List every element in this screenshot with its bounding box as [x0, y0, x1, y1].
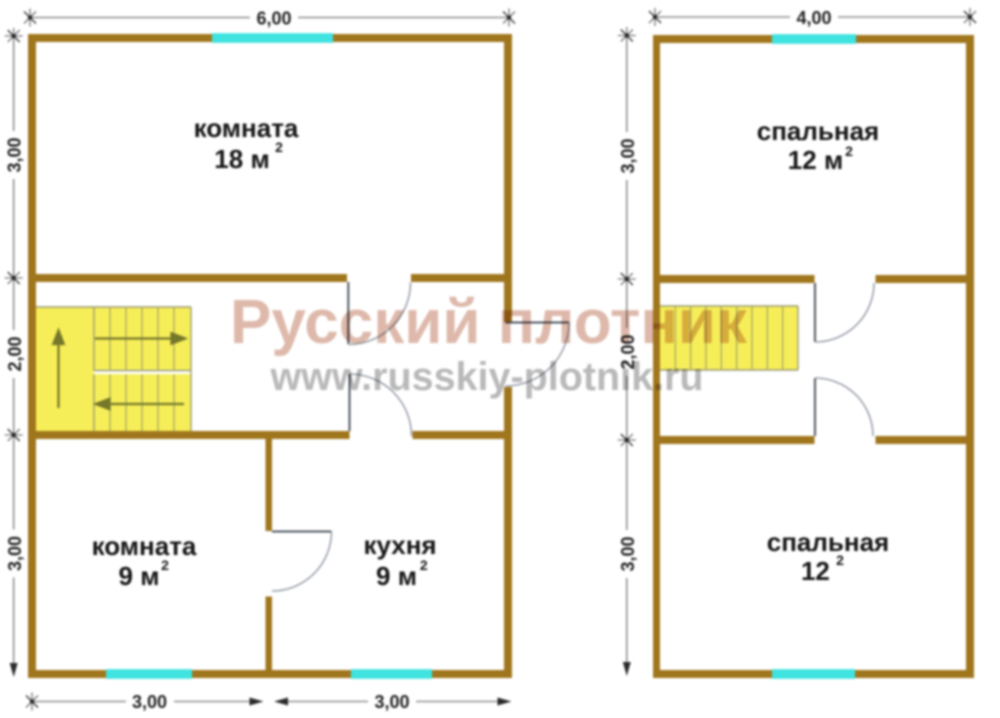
svg-text:спальная: спальная: [757, 116, 879, 146]
svg-text:3,00: 3,00: [132, 692, 167, 712]
svg-text:спальная: спальная: [767, 527, 889, 557]
svg-text:комната: комната: [194, 113, 299, 143]
svg-text:2,00: 2,00: [5, 336, 25, 371]
svg-text:3,00: 3,00: [618, 536, 638, 571]
svg-text:9 м: 9 м: [119, 561, 160, 591]
svg-text:2: 2: [161, 557, 169, 573]
svg-text:3,00: 3,00: [618, 138, 638, 173]
svg-text:9 м: 9 м: [376, 561, 417, 591]
svg-text:2: 2: [836, 552, 844, 568]
svg-text:2: 2: [275, 139, 283, 155]
svg-text:2: 2: [845, 143, 853, 159]
svg-text:6,00: 6,00: [256, 9, 291, 29]
svg-text:кухня: кухня: [363, 530, 436, 560]
svg-text:Русский плотник: Русский плотник: [230, 288, 748, 357]
svg-text:4,00: 4,00: [796, 8, 831, 28]
svg-text:3,00: 3,00: [374, 692, 409, 712]
svg-text:комната: комната: [92, 531, 197, 561]
svg-text:3,00: 3,00: [5, 536, 25, 571]
svg-text:18 м: 18 м: [214, 144, 269, 174]
svg-text:www.russkiy-plotnik.ru: www.russkiy-plotnik.ru: [269, 355, 703, 399]
svg-text:12: 12: [801, 556, 830, 586]
svg-text:2: 2: [420, 557, 428, 573]
svg-text:12 м: 12 м: [788, 145, 843, 175]
svg-text:3,00: 3,00: [5, 137, 25, 172]
